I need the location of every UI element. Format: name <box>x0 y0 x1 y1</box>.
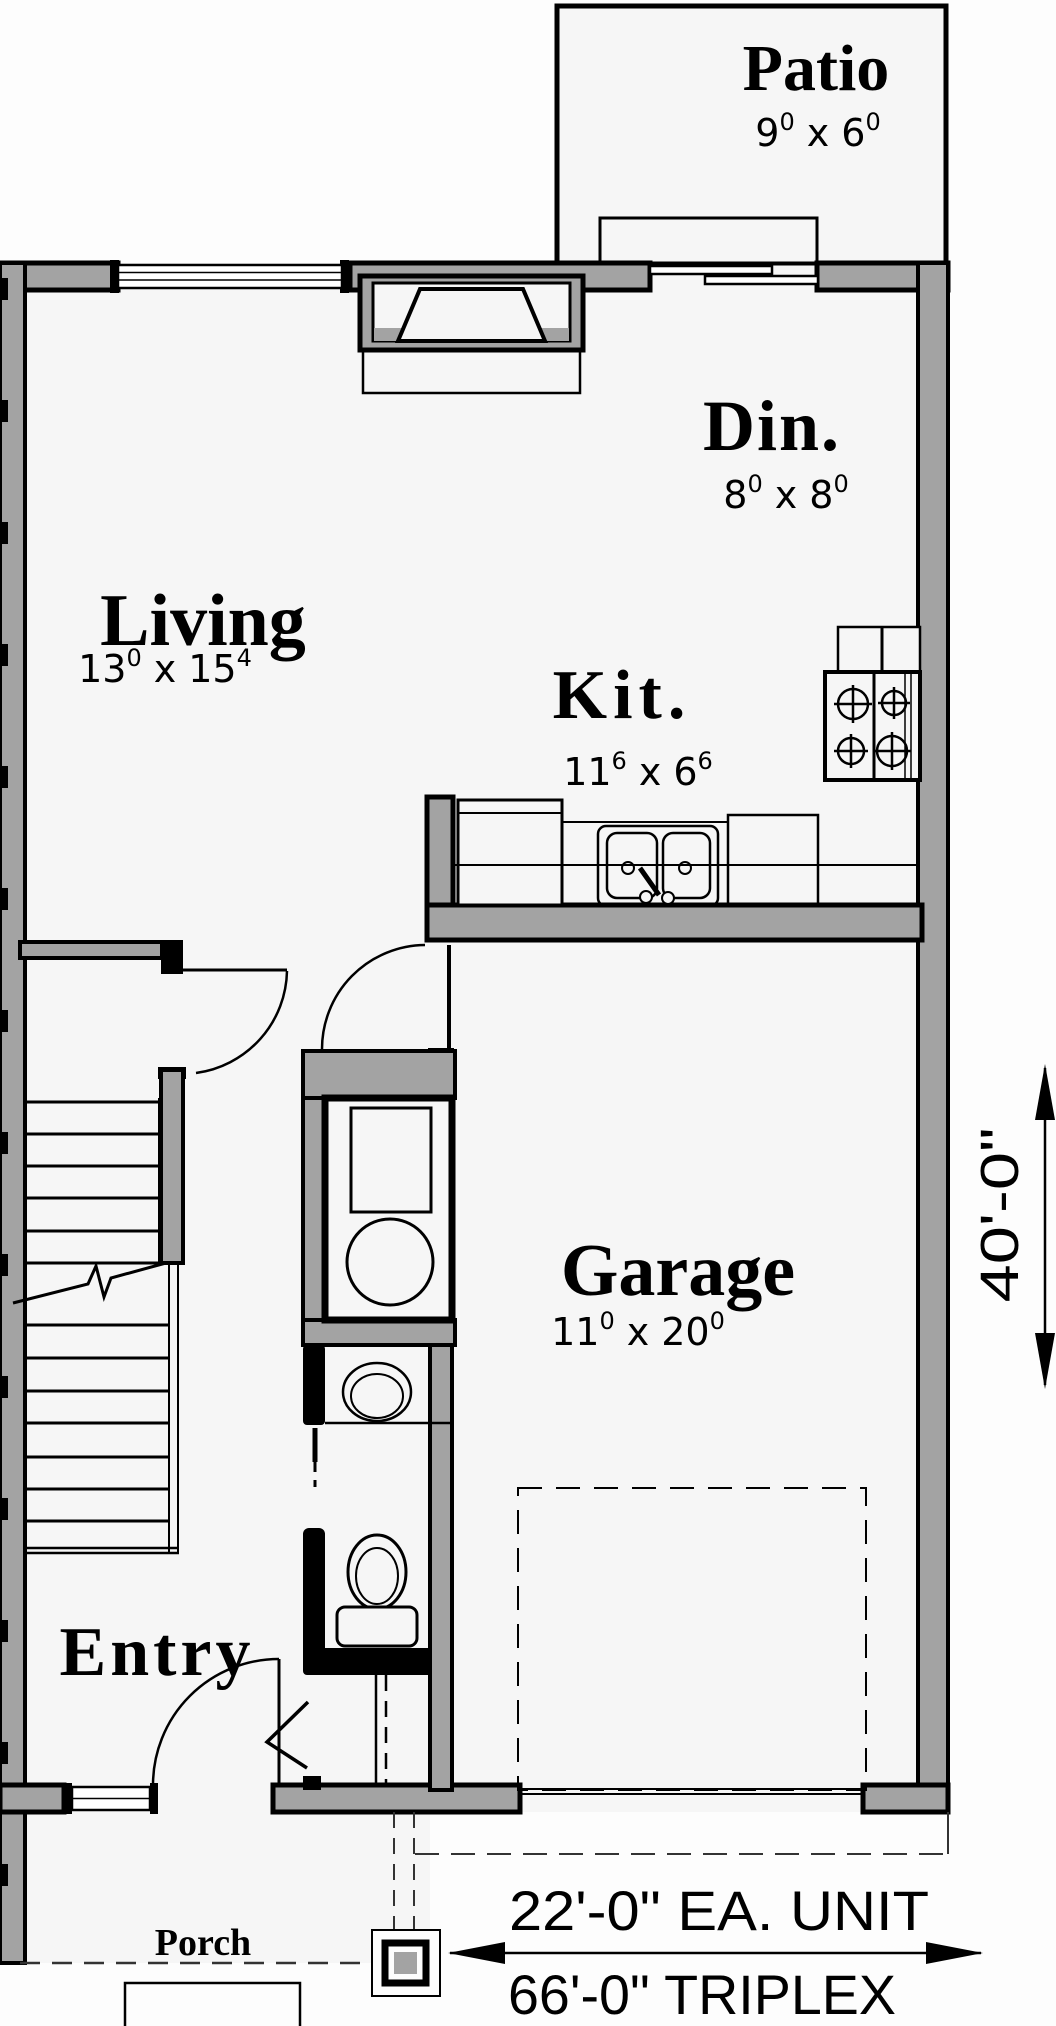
dining-dimensions: 80x80 <box>723 470 848 517</box>
left-party-wall <box>0 263 25 1963</box>
window <box>64 1783 158 1814</box>
closet-divider-wall <box>303 1320 455 1345</box>
patio-dimensions: 90x60 <box>755 108 880 155</box>
garage-label: Garage <box>561 1230 795 1312</box>
window <box>110 260 349 293</box>
porch-column <box>372 1930 440 1996</box>
closet-interior <box>325 1098 452 1320</box>
garage-dimensions: 110x200 <box>551 1307 725 1354</box>
refrigerator <box>458 800 562 905</box>
porch-step <box>125 1983 300 2026</box>
utility-closet <box>303 1051 455 1345</box>
total-width-dimension-text: 66'-0" TRIPLEX <box>508 1963 896 2026</box>
patio-landing <box>600 218 817 263</box>
arrow-head-left <box>448 1942 505 1964</box>
dining-label: Din. <box>703 386 841 466</box>
right-exterior-wall <box>918 263 948 1812</box>
unit-floor <box>0 263 948 1812</box>
unit-width-dimension-text: 22'-0" EA. UNIT <box>509 1879 929 1942</box>
closet-top-wall <box>303 1051 455 1098</box>
hall-wall-cap <box>161 940 183 974</box>
entry-label: Entry <box>60 1614 255 1691</box>
patio-label: Patio <box>743 32 890 105</box>
toilet-tank <box>337 1607 417 1646</box>
floor-plan: Patio 90x60 Din. 80x80 Living 130x154 Ki… <box>0 0 1056 2026</box>
arrow-head-down <box>1035 1333 1055 1389</box>
kitchen-stub-wall <box>427 797 453 905</box>
arrow-head-right <box>926 1942 983 1964</box>
upper-counter <box>838 627 920 672</box>
floor-plan-canvas: Patio 90x60 Din. 80x80 Living 130x154 Ki… <box>0 0 1056 2026</box>
height-dimension-text: 40'-0" <box>970 1128 1030 1303</box>
kitchen-label: Kit. <box>553 657 692 734</box>
vanity-wall <box>303 1345 325 1425</box>
kitchen-garage-wall <box>427 905 922 940</box>
wc-south-wall <box>303 1648 432 1675</box>
hall-wall <box>20 942 162 958</box>
porch-label: Porch <box>155 1922 251 1964</box>
door-latch-block <box>303 1776 321 1790</box>
wall-segment <box>0 1785 64 1812</box>
stair-rail-wall <box>161 1070 183 1263</box>
kitchen-dimensions: 116x66 <box>563 747 713 794</box>
firebox <box>398 289 545 341</box>
living-dimensions: 130x154 <box>78 644 252 691</box>
kitchen-range <box>825 672 920 780</box>
wall-segment <box>863 1785 948 1812</box>
arrow-head-up <box>1035 1064 1055 1120</box>
